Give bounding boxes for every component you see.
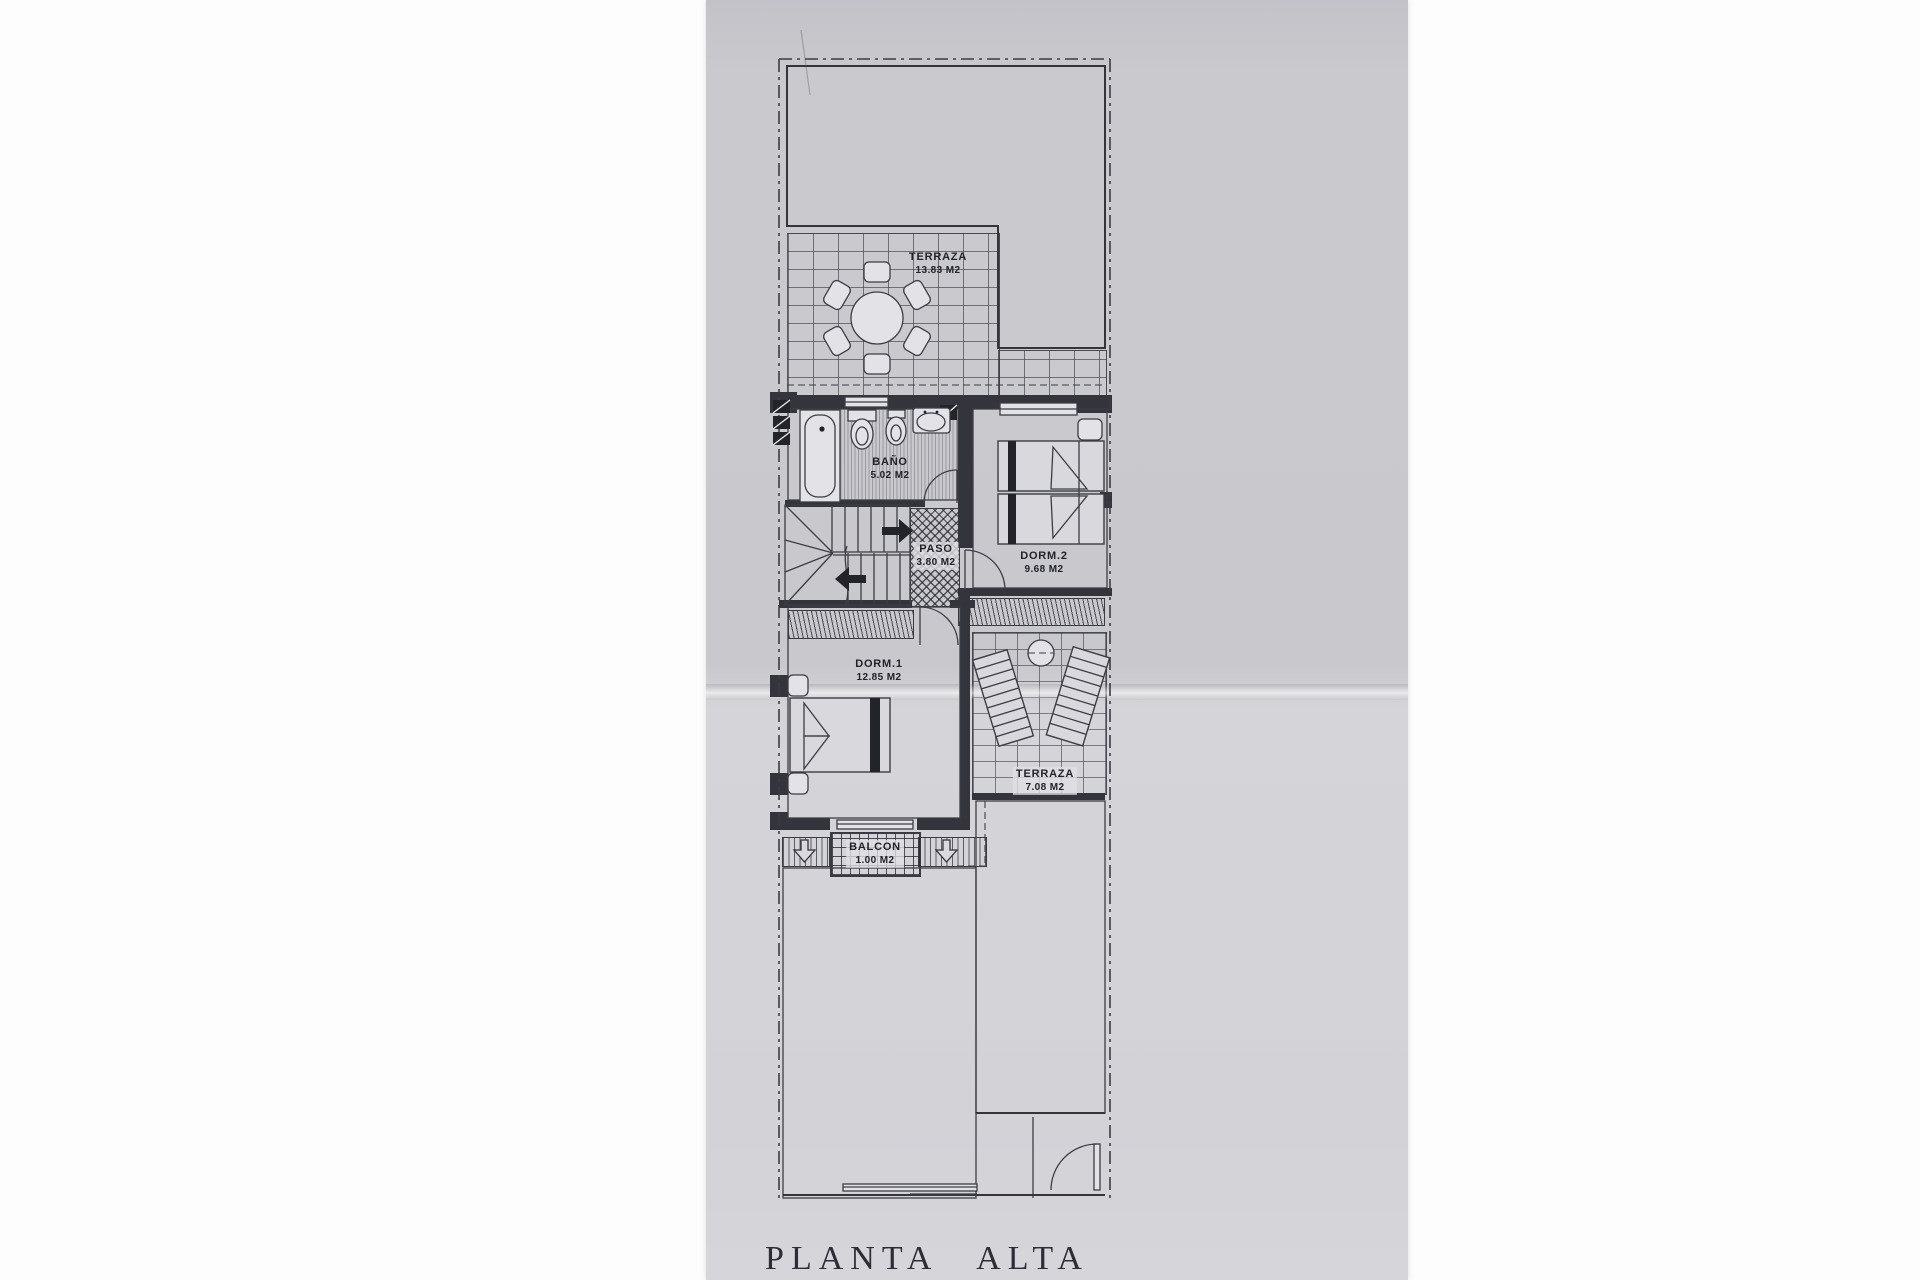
bathroom xyxy=(773,397,958,503)
dorm1 xyxy=(788,607,960,829)
pencil-mark xyxy=(801,30,810,95)
sun-lounger-left xyxy=(973,650,1034,747)
label-dorm1: DORM.1 12.85 M2 xyxy=(855,658,903,684)
dorm1-nightstand-a xyxy=(788,675,808,696)
room-name: TERRAZA xyxy=(909,251,967,263)
label-terraza-top: TERRAZA 13.83 M2 xyxy=(909,251,967,277)
dorm1-door xyxy=(920,607,958,645)
staircase xyxy=(785,505,913,607)
dorm2-nightstand xyxy=(1078,419,1102,440)
bathroom-door xyxy=(924,470,957,503)
room-area: 3.80 M2 xyxy=(917,557,956,570)
label-dorm2: DORM.2 9.68 M2 xyxy=(1020,550,1068,576)
room-area: 1.00 M2 xyxy=(849,855,901,868)
sink xyxy=(913,408,950,433)
scanned-floor-plan-page: TERRAZA 13.83 M2 BAÑO 5.02 M2 PASO 3.80 … xyxy=(0,0,1920,1280)
room-name: BAÑO xyxy=(872,456,908,468)
terrace-table-set xyxy=(822,262,932,374)
bathtub xyxy=(800,410,840,502)
bidet xyxy=(886,410,906,445)
boundary-dashdot-lines xyxy=(779,59,1110,1198)
scanned-paper: TERRAZA 13.83 M2 BAÑO 5.02 M2 PASO 3.80 … xyxy=(706,0,1408,1280)
label-paso: PASO 3.80 M2 xyxy=(914,542,959,570)
room-name: DORM.1 xyxy=(855,658,903,670)
dorm2-door xyxy=(965,550,1005,590)
room-name: PASO xyxy=(919,543,953,555)
plan-linework xyxy=(706,0,1408,1280)
entrance-door xyxy=(1051,1144,1100,1190)
sun-lounger-right xyxy=(1046,647,1109,746)
lower-floor-outline xyxy=(783,801,1105,1198)
room-area: 12.85 M2 xyxy=(855,672,903,685)
room-area: 9.68 M2 xyxy=(1020,564,1068,577)
room-name: TERRAZA xyxy=(1016,768,1074,780)
label-terraza-side: TERRAZA 7.08 M2 xyxy=(1013,767,1077,795)
room-area: 13.83 M2 xyxy=(909,265,967,278)
toilet xyxy=(848,410,876,449)
plan-title: PLANTA ALTA xyxy=(765,1240,1089,1278)
dorm1-nightstand-b xyxy=(788,773,808,794)
room-area: 5.02 M2 xyxy=(871,470,910,483)
room-name: BALCON xyxy=(849,841,901,853)
room-name: DORM.2 xyxy=(1020,550,1068,562)
label-balcon: BALCON 1.00 M2 xyxy=(846,840,904,868)
label-bano: BAÑO 5.02 M2 xyxy=(871,456,910,482)
room-area: 7.08 M2 xyxy=(1016,782,1074,795)
terrace-side-furniture xyxy=(973,640,1110,746)
